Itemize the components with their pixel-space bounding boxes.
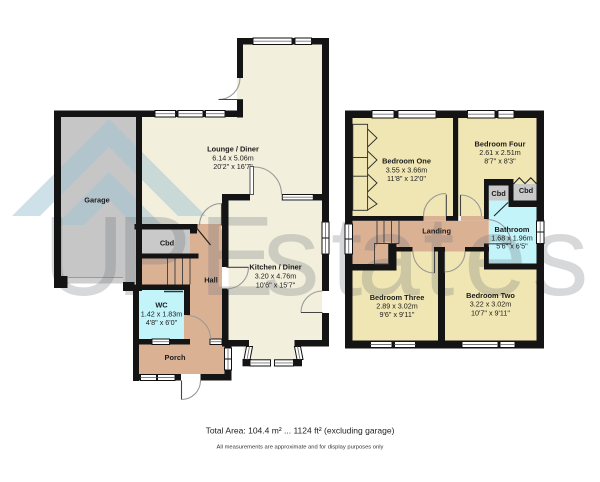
svg-text:9'6" x 9'11": 9'6" x 9'11"	[380, 310, 415, 319]
svg-text:Landing: Landing	[422, 226, 451, 235]
svg-text:Cbd: Cbd	[491, 189, 506, 198]
svg-text:Hall: Hall	[204, 275, 218, 284]
svg-text:Garage: Garage	[84, 195, 109, 204]
svg-text:10'6" x 15'7": 10'6" x 15'7"	[256, 280, 296, 289]
svg-text:Porch: Porch	[165, 353, 186, 362]
svg-text:3.22 x 3.02m: 3.22 x 3.02m	[470, 300, 512, 309]
svg-text:Kitchen / Diner: Kitchen / Diner	[249, 263, 301, 272]
svg-text:10'7" x 9'11": 10'7" x 9'11"	[471, 308, 510, 317]
svg-text:WC: WC	[155, 301, 168, 310]
svg-text:4'8" x 6'0": 4'8" x 6'0"	[146, 318, 178, 327]
svg-text:20'2" x 16'7": 20'2" x 16'7"	[213, 162, 253, 171]
svg-text:All measurements are approxima: All measurements are approximate and for…	[217, 445, 384, 451]
svg-text:1.42 x 1.83m: 1.42 x 1.83m	[141, 309, 183, 318]
svg-text:Total Area: 104.4 m² ... 1124: Total Area: 104.4 m² ... 1124 ft² (exclu…	[206, 426, 395, 436]
svg-text:3.20 x 4.76m: 3.20 x 4.76m	[255, 272, 297, 281]
svg-text:11'8" x 12'0": 11'8" x 12'0"	[387, 174, 426, 183]
svg-text:5'6" x 6'5": 5'6" x 6'5"	[496, 241, 528, 250]
svg-text:8'7" x 8'3": 8'7" x 8'3"	[484, 156, 516, 165]
svg-text:Bedroom One: Bedroom One	[382, 156, 431, 165]
svg-text:Bedroom Four: Bedroom Four	[475, 140, 526, 149]
svg-text:Cbd: Cbd	[160, 239, 175, 248]
svg-text:Cbd: Cbd	[519, 186, 534, 195]
svg-text:Bedroom Two: Bedroom Two	[466, 291, 515, 300]
svg-text:Bedroom Three: Bedroom Three	[370, 293, 425, 302]
